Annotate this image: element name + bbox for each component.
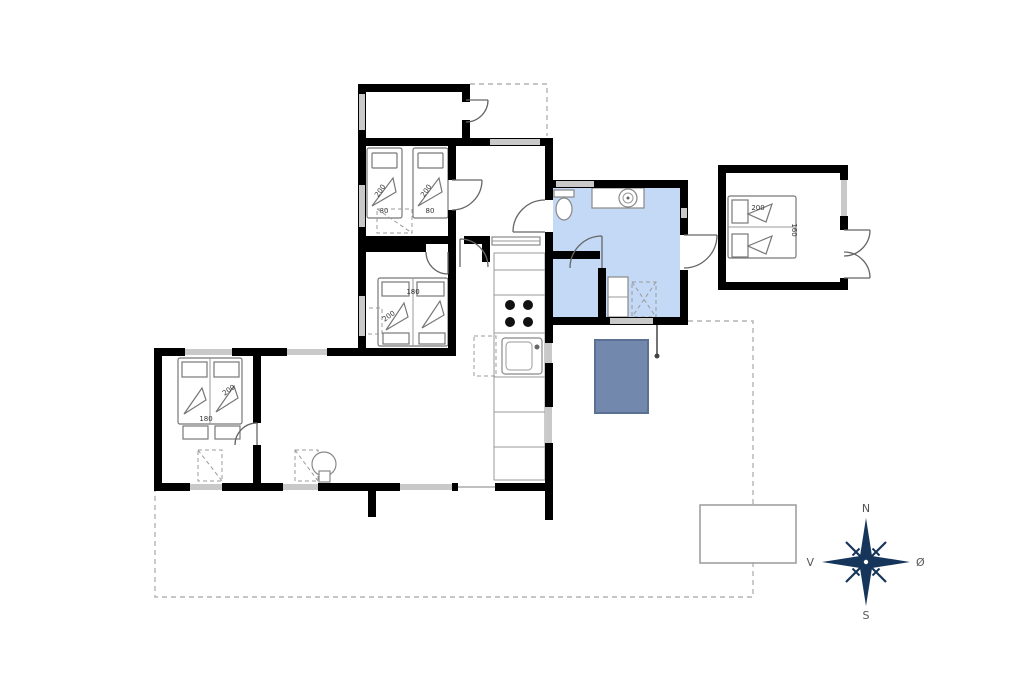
compass-east-label: Ø: [916, 556, 925, 569]
living-room-items: [198, 450, 336, 482]
pillow: [372, 153, 397, 168]
bed-width-label: 180: [406, 288, 419, 296]
compass-center-dot: [864, 560, 868, 564]
footboard: [183, 426, 208, 439]
floor-plan-page: 200 80 200 80 180 200: [0, 0, 1024, 682]
pillow: [382, 282, 409, 296]
drain-point: [655, 354, 660, 359]
bed-width-label: 180: [199, 415, 212, 423]
compass-north-label: N: [862, 502, 870, 515]
footboard: [383, 333, 409, 344]
cooktop-icon: [505, 300, 533, 327]
pillow: [418, 153, 443, 168]
porch-boundary: [470, 84, 547, 136]
bed-length-label: 200: [751, 204, 764, 212]
top-bedroom-beds: 200 80 200 80: [367, 148, 448, 233]
floor-plan: 200 80 200 80 180 200: [0, 0, 1024, 682]
wood-stove-base: [319, 471, 330, 482]
outdoor: [595, 325, 796, 563]
bed-width-label: 80: [426, 207, 435, 215]
footboard: [419, 333, 445, 344]
pillow: [182, 362, 207, 377]
left-bedroom-bed: 200 180: [178, 358, 242, 439]
toilet-tank: [554, 190, 574, 197]
bed-width-label: 160: [790, 223, 798, 236]
compass-rose: N S V Ø: [806, 502, 925, 622]
compass-west-label: V: [806, 556, 814, 569]
dishwasher-outline: [474, 336, 496, 376]
kitchen-sink: [502, 338, 542, 374]
bathroom-hall-door: [513, 200, 545, 232]
middle-bedroom-door: [426, 252, 448, 274]
annex-bed: 200 160: [728, 196, 798, 258]
pillow: [732, 234, 748, 257]
garden-table: [700, 505, 796, 563]
basin-drain: [627, 197, 630, 200]
single-bed-1: 200 80: [367, 148, 402, 218]
pillow: [214, 362, 239, 377]
middle-bedroom-bed: 180 200: [362, 278, 448, 346]
walls: [154, 84, 848, 520]
sink-faucet: [535, 345, 540, 350]
pillow: [417, 282, 444, 296]
hot-tub: [595, 340, 648, 413]
wardrobe-outline: [198, 450, 222, 481]
single-bed-2: 200 80: [413, 148, 448, 218]
windows: [185, 94, 847, 490]
wardrobe-diagonal: [198, 450, 222, 481]
toilet-bowl: [556, 198, 572, 220]
top-bedroom-door: [452, 180, 482, 210]
kitchen: [474, 237, 545, 480]
terrace-boundary: [155, 321, 753, 597]
bathroom-exterior-door: [684, 235, 717, 268]
pillow: [732, 200, 748, 223]
utility-porch-door: [466, 100, 488, 122]
compass-south-label: S: [863, 609, 870, 622]
